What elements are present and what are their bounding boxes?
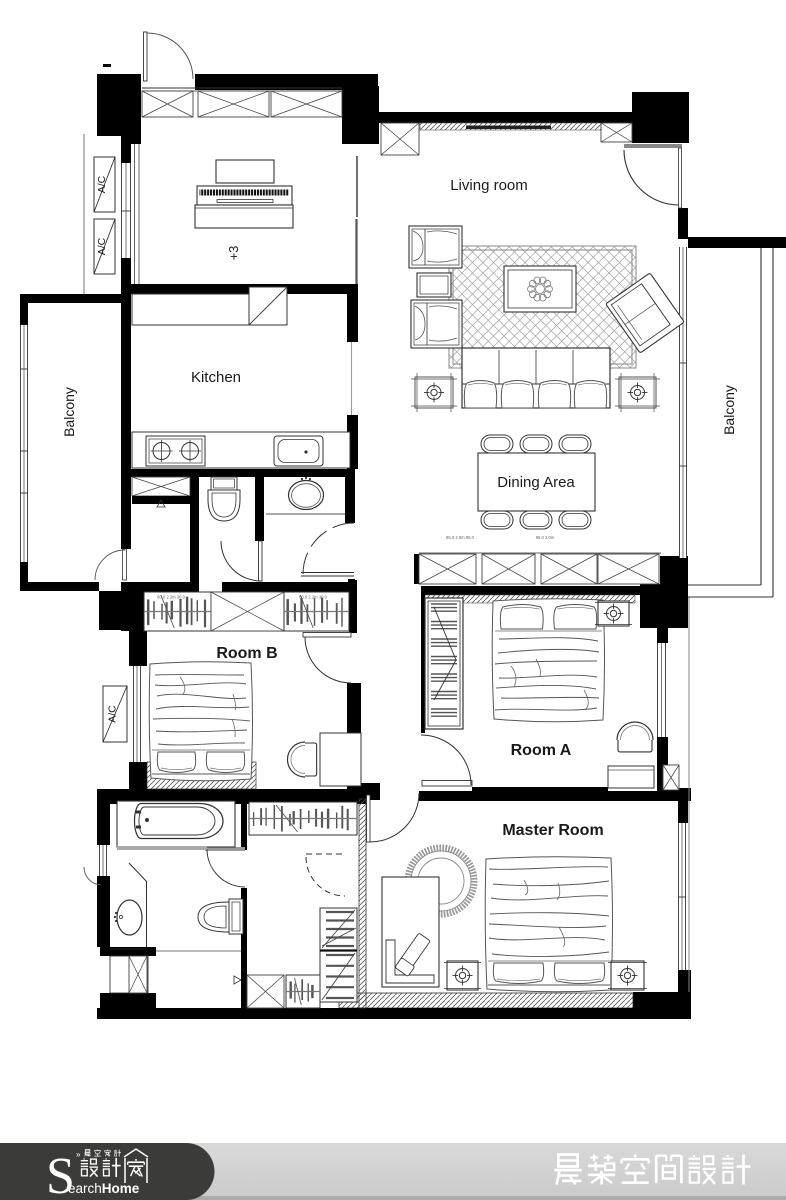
- svg-text:Room B: Room B: [216, 645, 277, 662]
- svg-text:60.0 2.2m 30.0: 60.0 2.2m 30.0: [299, 595, 328, 600]
- svg-text:95.0 2.0m 95.0: 95.0 2.0m 95.0: [446, 535, 475, 540]
- svg-text:A/C: A/C: [96, 237, 108, 255]
- svg-text:+3: +3: [226, 246, 241, 261]
- svg-text:Master Room: Master Room: [502, 822, 603, 839]
- svg-text:A/C: A/C: [96, 175, 108, 193]
- svg-text:earchHome: earchHome: [68, 1181, 140, 1196]
- svg-text:Living room: Living room: [450, 177, 528, 194]
- svg-text:Balcony: Balcony: [721, 385, 737, 435]
- svg-text:Balcony: Balcony: [61, 387, 77, 437]
- svg-text:95.0 2.0m: 95.0 2.0m: [536, 535, 555, 540]
- svg-text:A/C: A/C: [107, 705, 119, 723]
- svg-text:Room A: Room A: [511, 742, 572, 759]
- svg-text:»: »: [76, 1150, 81, 1159]
- svg-text:Kitchen: Kitchen: [191, 369, 241, 386]
- svg-text:60.0 2.2m 30.0: 60.0 2.2m 30.0: [157, 595, 186, 600]
- svg-text:Dining Area: Dining Area: [497, 474, 575, 491]
